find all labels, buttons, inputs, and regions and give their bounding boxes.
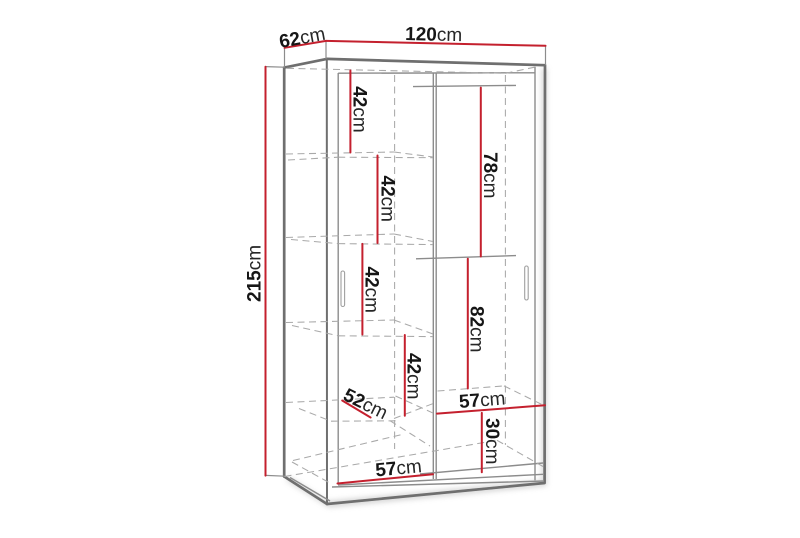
svg-text:215cm: 215cm: [245, 245, 266, 302]
svg-text:78cm: 78cm: [479, 152, 500, 198]
svg-text:42cm: 42cm: [403, 353, 424, 399]
svg-text:82cm: 82cm: [466, 306, 487, 352]
svg-text:42cm: 42cm: [361, 267, 382, 313]
svg-text:57cm: 57cm: [374, 456, 422, 481]
svg-text:42cm: 42cm: [349, 86, 370, 132]
svg-text:120cm: 120cm: [405, 24, 462, 46]
svg-text:42cm: 42cm: [377, 176, 398, 222]
svg-text:30cm: 30cm: [481, 418, 502, 464]
svg-text:57cm: 57cm: [458, 388, 506, 413]
